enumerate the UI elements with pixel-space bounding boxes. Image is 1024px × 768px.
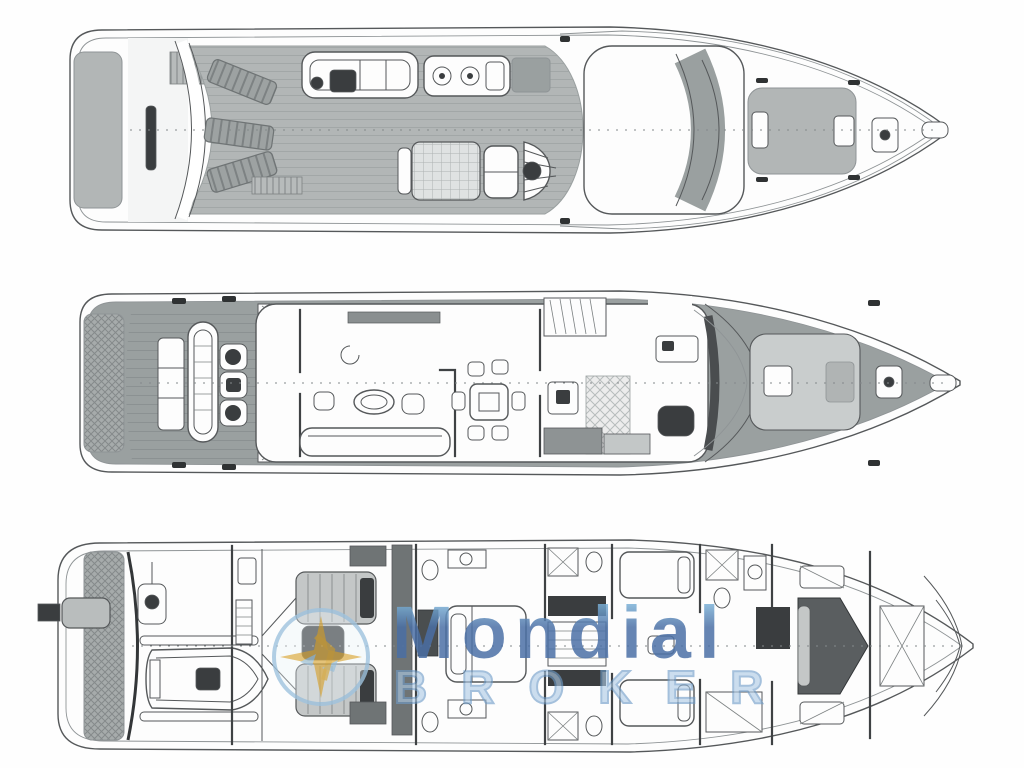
deck-vent bbox=[252, 177, 302, 194]
foredeck-sunpad bbox=[748, 88, 856, 174]
fuel-tank bbox=[350, 702, 386, 724]
armchair bbox=[314, 392, 334, 410]
windlass bbox=[872, 118, 898, 152]
lower-stairs bbox=[548, 622, 606, 666]
deck-plan-drawing bbox=[0, 0, 1024, 768]
tank-bulkhead bbox=[392, 545, 412, 735]
salon-sofa bbox=[300, 428, 450, 456]
swim-platform bbox=[84, 552, 124, 740]
gearbox bbox=[302, 626, 344, 660]
sideboard bbox=[348, 312, 440, 323]
companionway-stairs bbox=[544, 298, 606, 336]
armchair bbox=[402, 394, 424, 414]
main-deck-plan bbox=[80, 291, 960, 475]
toilet bbox=[422, 560, 438, 580]
cockpit-sunbed bbox=[188, 322, 218, 442]
flybridge-sofa bbox=[302, 52, 418, 98]
wardrobe bbox=[418, 610, 438, 656]
coffee-table bbox=[354, 390, 394, 414]
wet-bar bbox=[424, 56, 510, 96]
transom-seat bbox=[158, 338, 184, 430]
anchor-roller bbox=[922, 122, 948, 138]
vanity-dark bbox=[756, 607, 790, 649]
nightstand bbox=[648, 636, 674, 654]
passerelle bbox=[38, 604, 60, 621]
windlass bbox=[876, 366, 902, 398]
flybridge-deck-plan bbox=[70, 27, 948, 233]
yacht-deck-plans-image: Mondial BROKER bbox=[0, 0, 1024, 768]
fuel-tank bbox=[350, 546, 386, 566]
lower-deck-plan bbox=[38, 540, 973, 752]
side-door bbox=[648, 296, 692, 307]
flybridge-sunpad bbox=[512, 58, 550, 92]
foredeck-sunpad bbox=[750, 334, 860, 430]
flybridge-dinette bbox=[398, 142, 480, 200]
flybridge-swim-platform bbox=[74, 52, 122, 208]
platform-hatch bbox=[62, 598, 110, 628]
swim-platform bbox=[84, 314, 124, 452]
davit-crane bbox=[146, 106, 156, 170]
engine-hatches bbox=[220, 344, 247, 426]
